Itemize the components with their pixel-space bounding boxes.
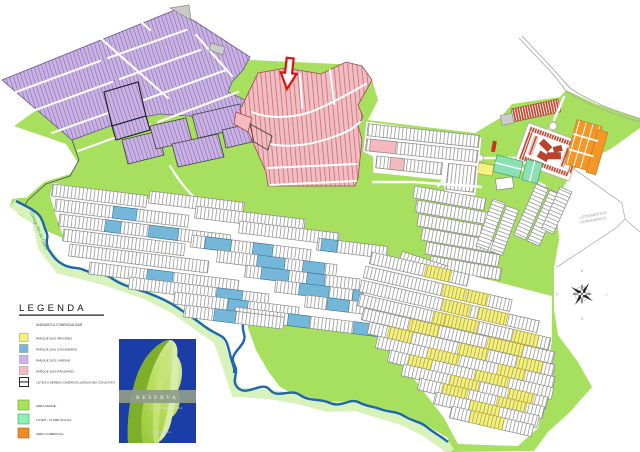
svg-text:O: O [556,293,559,297]
svg-text:ÁREA COMERCIAL.: ÁREA COMERCIAL. [36,432,65,436]
svg-text:PARQUE DAS ÁRVORES: PARQUE DAS ÁRVORES [36,337,72,341]
svg-text:LEGENDA: LEGENDA [19,303,87,314]
svg-text:RESERVA: RESERVA [136,395,179,401]
svg-text:QUALIDADE DE VIDA: QUALIDADE DE VIDA [150,407,183,410]
svg-text:PARQUE DAS CACHOEIRAS: PARQUE DAS CACHOEIRAS [36,348,77,352]
svg-text:LOTES - CLUBE SOCIAL.: LOTES - CLUBE SOCIAL. [36,418,72,422]
svg-text:PARQUE DOS PÁSSAROS: PARQUE DOS PÁSSAROS [36,370,74,374]
svg-text:UNIDADES A COMERCIALIZAR: UNIDADES A COMERCIALIZAR [36,323,83,327]
svg-text:PARQUE DOS JARDINS: PARQUE DOS JARDINS [36,359,71,363]
svg-text:EMPREENDIMENTO: EMPREENDIMENTO [150,432,171,434]
svg-text:L: L [606,293,608,297]
svg-text:ÁREA VERDE.: ÁREA VERDE. [36,404,57,408]
svg-text:LOTES A SEREM COMERCIALIZADOS: LOTES A SEREM COMERCIALIZADOS EM CONJUNT… [36,381,115,385]
